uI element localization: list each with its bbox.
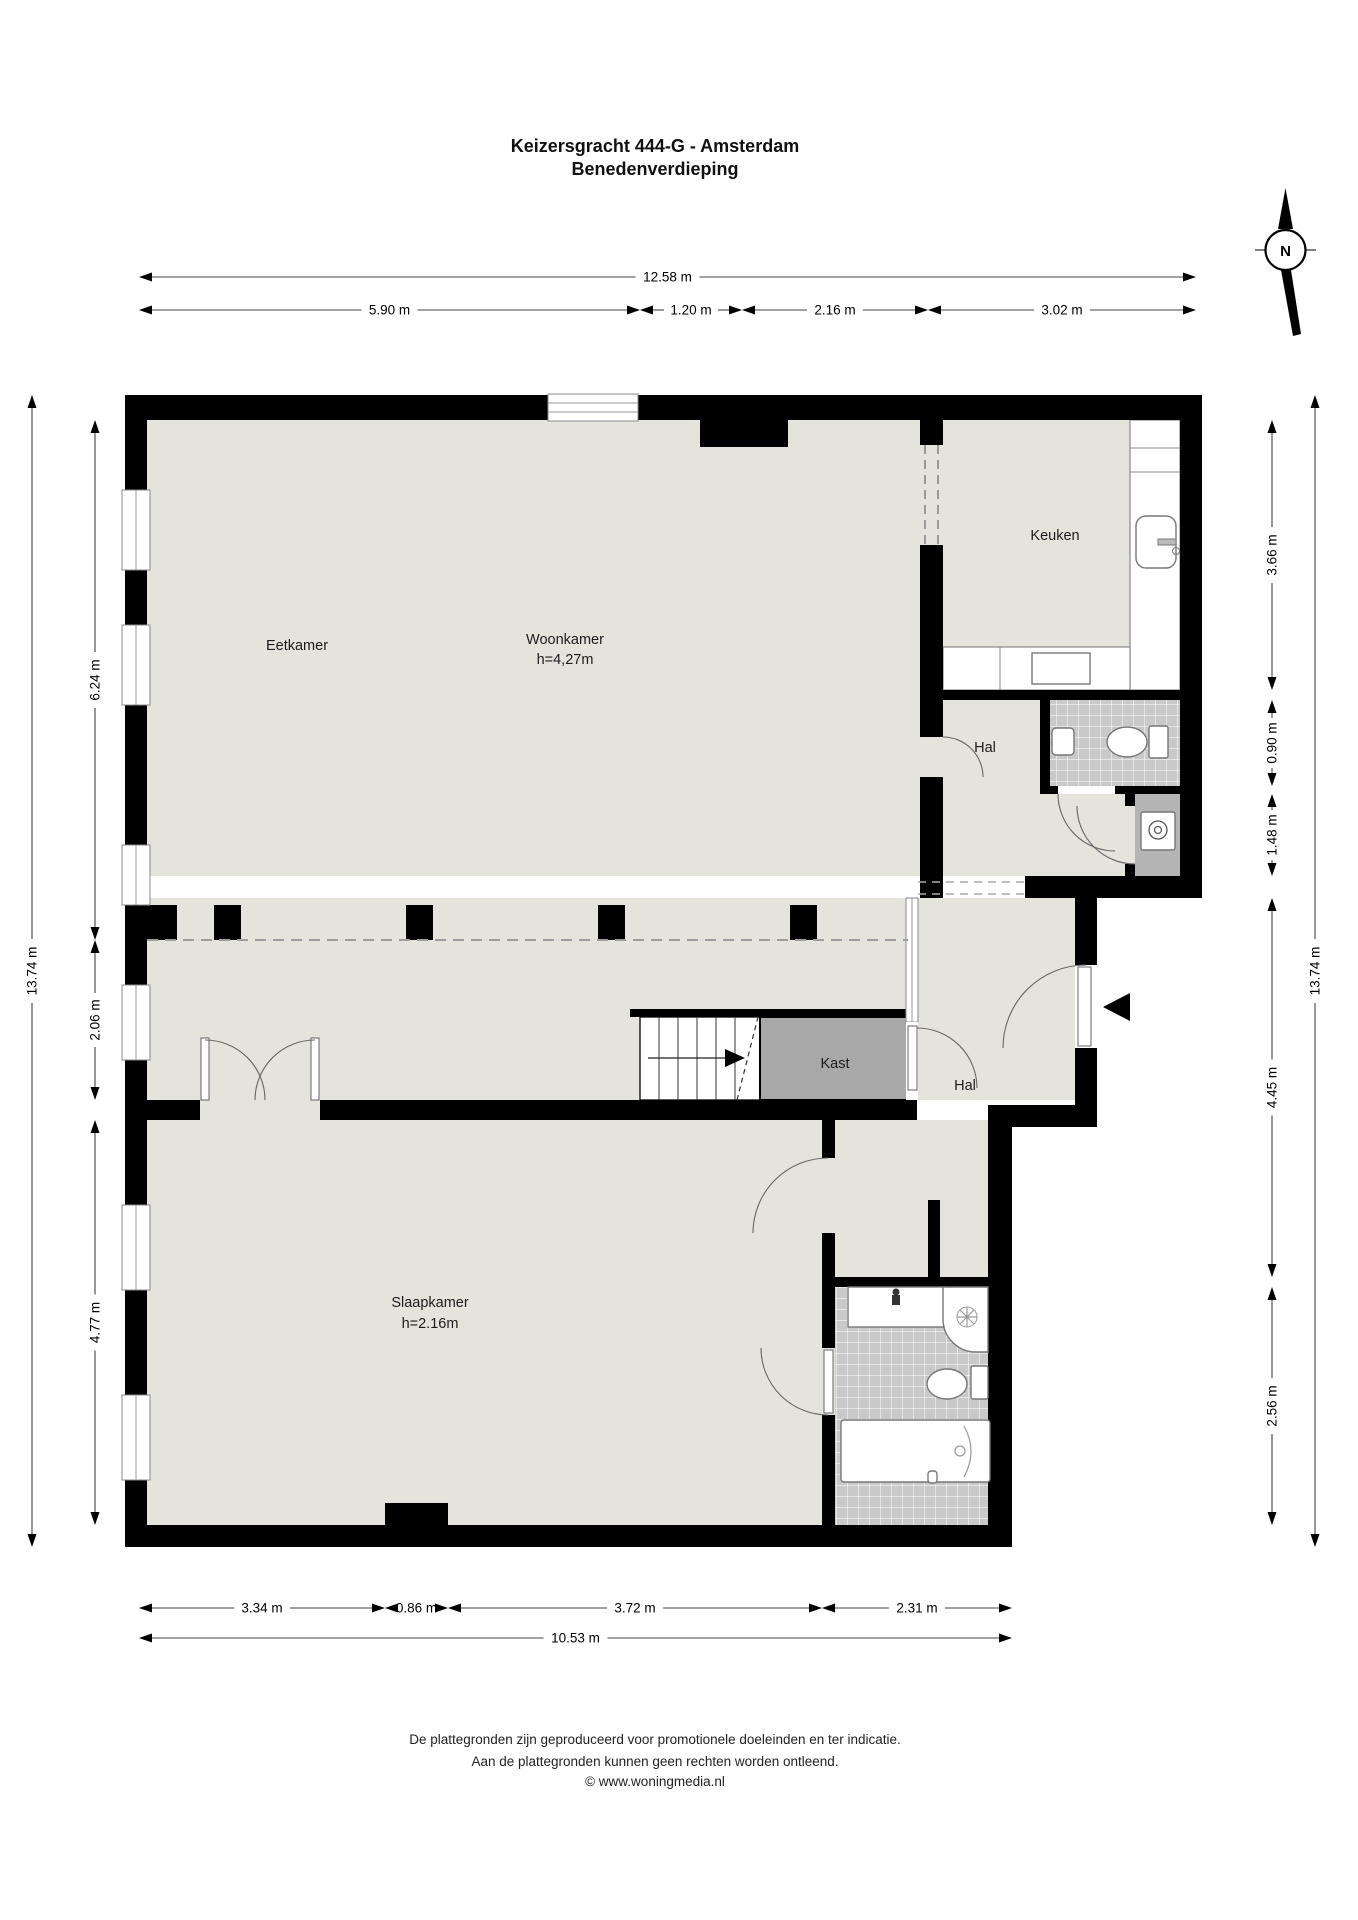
dim-top-1: 5.90 m xyxy=(139,303,640,318)
window-left xyxy=(122,845,150,905)
bathroom-faucet-icon xyxy=(893,1289,900,1296)
dim-right-total-label: 13.74 m xyxy=(1308,947,1323,996)
label-woonkamer-height: h=4,27m xyxy=(537,652,594,668)
wall-bathroom-top xyxy=(835,1277,988,1287)
dim-right-3: 1.48 m xyxy=(1265,794,1280,876)
dim-top-4: 3.02 m xyxy=(928,303,1196,318)
dim-top-4-label: 3.02 m xyxy=(1041,303,1082,318)
toilet-tank-icon xyxy=(971,1366,988,1399)
label-kast: Kast xyxy=(820,1056,849,1072)
dim-left-total: 13.74 m xyxy=(25,395,40,1547)
bedroom-door-opening xyxy=(822,1158,835,1233)
wall-bottom xyxy=(125,1525,1012,1547)
compass-icon: N xyxy=(1255,188,1316,336)
page-subtitle: Benedenverdieping xyxy=(571,159,738,179)
dim-left-1: 6.24 m xyxy=(88,420,103,940)
bathtub-icon xyxy=(841,1420,990,1482)
bedroom-double-door-opening xyxy=(200,1100,320,1120)
wall-corridor-stub xyxy=(928,1200,940,1277)
window-left xyxy=(122,1205,150,1290)
dim-right-4-label: 4.45 m xyxy=(1265,1067,1280,1108)
window-left xyxy=(122,490,150,570)
pillar xyxy=(406,905,433,940)
bathtub-faucet-icon xyxy=(928,1471,937,1483)
dim-right-1-label: 3.66 m xyxy=(1265,534,1280,575)
washing-machine-icon xyxy=(1141,812,1175,850)
footer-line-1: De plattegronden zijn geproduceerd voor … xyxy=(409,1732,901,1747)
floor-areas xyxy=(147,420,1180,1525)
dim-top-2: 1.20 m xyxy=(640,303,742,318)
stove-icon xyxy=(1032,653,1090,684)
wall-entrance-jamb-bottom xyxy=(1075,1048,1097,1105)
wc-door xyxy=(1058,786,1115,794)
dim-bottom-total: 10.53 m xyxy=(139,1631,1012,1646)
dim-left-1-label: 6.24 m xyxy=(88,659,103,700)
entrance-door-leaf xyxy=(1078,967,1091,1046)
dim-top-3: 2.16 m xyxy=(742,303,928,318)
dim-top-2-label: 1.20 m xyxy=(670,303,711,318)
wall-top xyxy=(125,395,1202,420)
pillar xyxy=(790,905,817,940)
wall-hall-bottom xyxy=(1025,876,1202,898)
kitchen-faucet-icon xyxy=(1158,539,1176,545)
toilet-icon xyxy=(927,1369,967,1399)
dim-right-1: 3.66 m xyxy=(1265,420,1280,690)
wall-kitchen-bottom xyxy=(920,690,1180,700)
label-hal-boven: Hal xyxy=(974,740,996,756)
dim-bottom-total-label: 10.53 m xyxy=(551,1631,600,1646)
dim-left-2: 2.06 m xyxy=(88,940,103,1100)
dim-bottom-3-label: 3.72 m xyxy=(614,1601,655,1616)
window-left xyxy=(122,625,150,705)
wall-wc-left xyxy=(1040,700,1050,794)
wall-stairs-top xyxy=(630,1009,917,1017)
dim-bottom-1-label: 3.34 m xyxy=(241,1601,282,1616)
bathroom-door-leaf xyxy=(824,1350,833,1413)
dim-bottom-2-label: 0.86 m xyxy=(396,1601,437,1616)
wc-handbasin-icon xyxy=(1052,728,1074,755)
page-title: Keizersgracht 444-G - Amsterdam xyxy=(511,136,799,156)
dim-right-2: 0.90 m xyxy=(1265,700,1280,786)
label-hal-onder: Hal xyxy=(954,1078,976,1094)
opening-living-hall xyxy=(920,737,943,777)
dim-bottom-3: 3.72 m xyxy=(448,1601,822,1616)
wall-entrance-jamb-top xyxy=(1075,898,1097,965)
dim-right-3-label: 1.48 m xyxy=(1265,814,1280,855)
dim-bottom-1: 3.34 m xyxy=(139,1601,385,1616)
label-woonkamer: Woonkamer xyxy=(526,632,604,648)
dim-left-3: 4.77 m xyxy=(88,1120,103,1525)
label-keuken: Keuken xyxy=(1030,528,1079,544)
double-door-leaf-left xyxy=(201,1038,209,1100)
dim-top-total: 12.58 m xyxy=(139,270,1196,285)
window-left xyxy=(122,1395,150,1480)
dim-bottom-4: 2.31 m xyxy=(822,1601,1012,1616)
glazed-partition xyxy=(906,898,918,1022)
chimney-top xyxy=(700,420,788,447)
wc-toilet-tank-icon xyxy=(1149,726,1168,758)
closet-door-leaf xyxy=(908,1026,917,1090)
floorplan-canvas: Keizersgracht 444-G - Amsterdam Benedenv… xyxy=(0,0,1358,1920)
pillar xyxy=(214,905,241,940)
dim-left-3-label: 4.77 m xyxy=(88,1302,103,1343)
dim-right-5-label: 2.56 m xyxy=(1265,1385,1280,1426)
dim-right-total: 13.74 m xyxy=(1308,395,1323,1547)
wall-right-lower xyxy=(988,1105,1012,1547)
dim-top-3-label: 2.16 m xyxy=(814,303,855,318)
footer: De plattegronden zijn geproduceerd voor … xyxy=(409,1732,901,1789)
dim-right-2-label: 0.90 m xyxy=(1265,722,1280,763)
dim-right-5: 2.56 m xyxy=(1265,1287,1280,1525)
utility-fixtures xyxy=(1141,812,1175,850)
label-slaapkamer: Slaapkamer xyxy=(391,1295,469,1311)
chimney-bedroom xyxy=(385,1503,448,1525)
footer-line-3: © www.woningmedia.nl xyxy=(585,1774,725,1789)
label-slaapkamer-height: h=2.16m xyxy=(402,1316,459,1332)
dim-left-total-label: 13.74 m xyxy=(25,947,40,996)
wall-bedroom-top xyxy=(320,1100,917,1120)
compass-north-label: N xyxy=(1280,243,1291,260)
dim-bottom-4-label: 2.31 m xyxy=(896,1601,937,1616)
dim-top-total-label: 12.58 m xyxy=(643,270,692,285)
label-eetkamer: Eetkamer xyxy=(266,638,328,654)
dim-top-1-label: 5.90 m xyxy=(369,303,410,318)
pillar xyxy=(147,905,177,940)
footer-line-2: Aan de plattegronden kunnen geen rechten… xyxy=(471,1754,838,1769)
pillar xyxy=(598,905,625,940)
window-top-wall xyxy=(548,394,638,421)
staircase xyxy=(640,1017,760,1100)
window-left xyxy=(122,985,150,1060)
dim-bottom-2: 0.86 m xyxy=(385,1601,448,1616)
entrance-arrow-icon xyxy=(1103,993,1130,1021)
wc-toilet-icon xyxy=(1107,727,1147,757)
dim-left-2-label: 2.06 m xyxy=(88,999,103,1040)
dim-right-4: 4.45 m xyxy=(1265,898,1280,1277)
wall-right-upper xyxy=(1180,395,1202,898)
double-door-leaf-right xyxy=(311,1038,319,1100)
